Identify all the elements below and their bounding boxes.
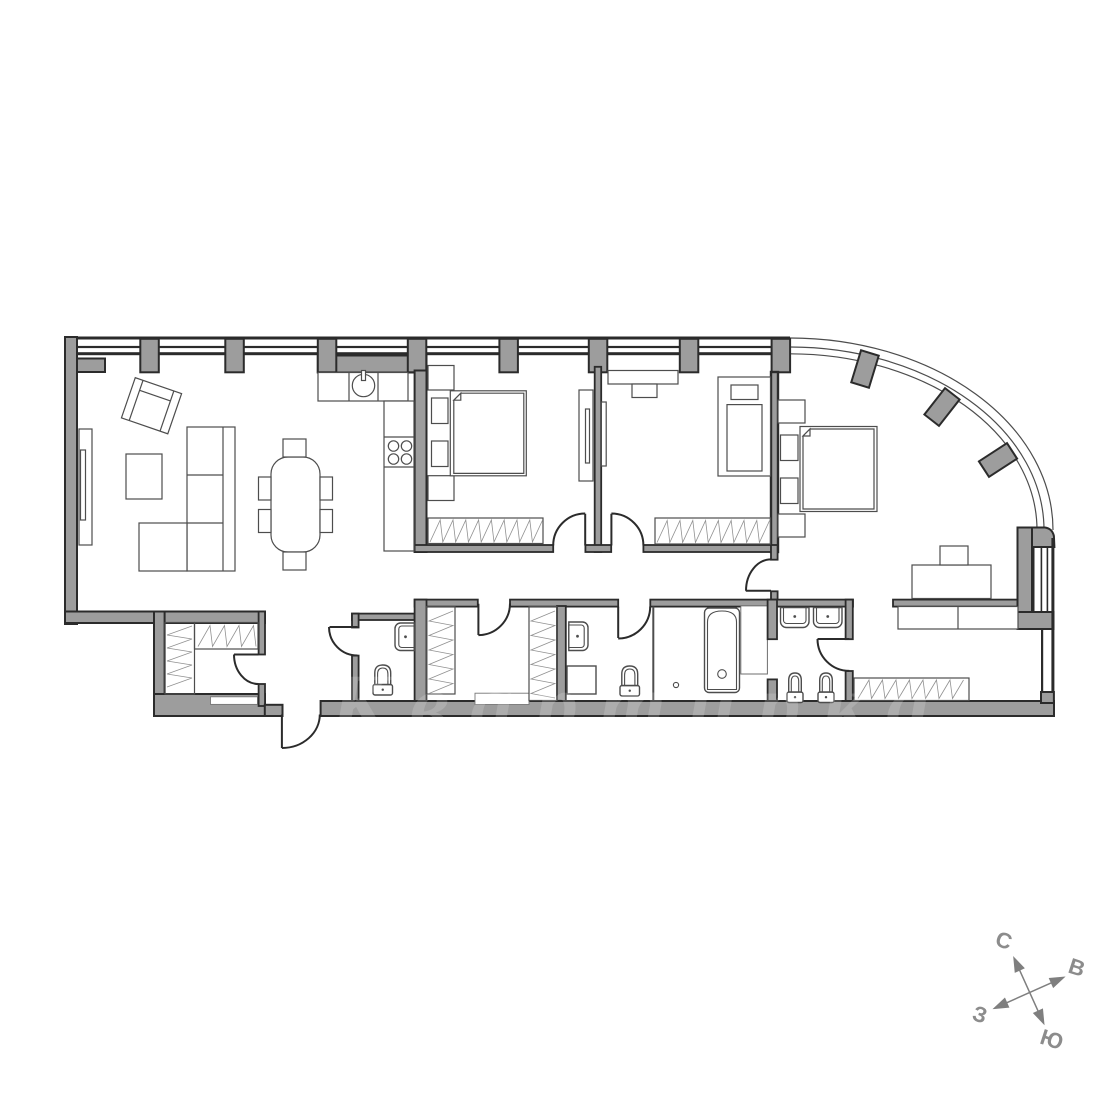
svg-text:Квартирка: Квартирка [329, 656, 951, 752]
